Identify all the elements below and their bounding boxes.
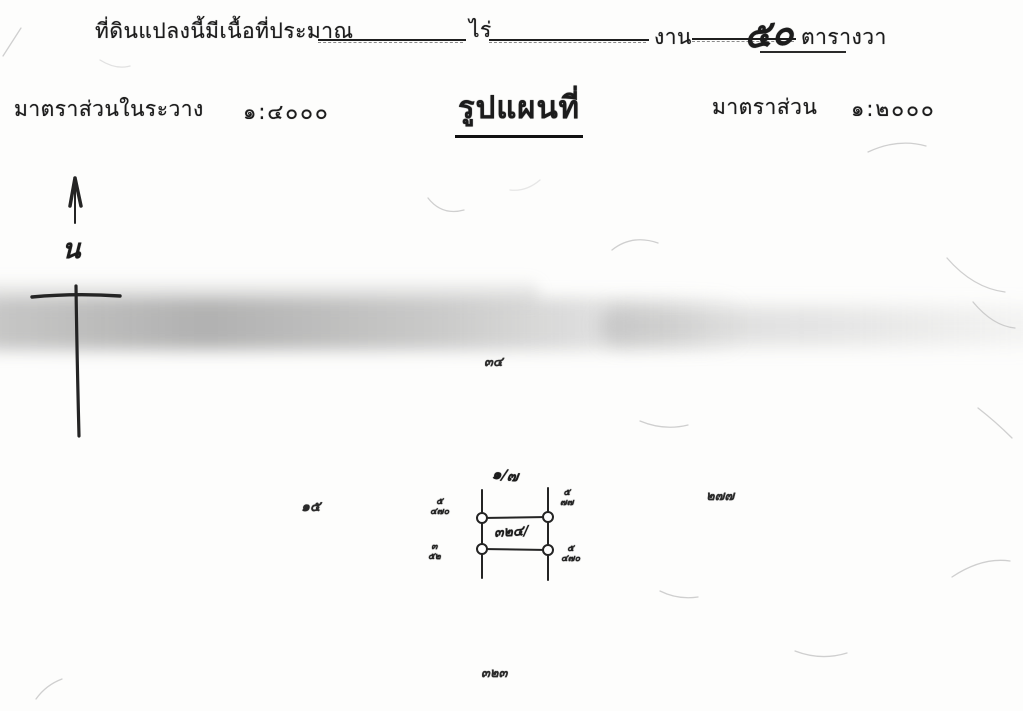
area-prefix-label: ที่ดินแปลงนี้มีเนื้อที่ประมาณ bbox=[95, 15, 354, 48]
annotation-right-mark: ๒๗๗ bbox=[706, 485, 734, 506]
square-wa-underline bbox=[760, 51, 846, 53]
ngan-label: งาน bbox=[654, 21, 692, 54]
boundary-corner-mark-top-left: ๕ ๔๗๐ bbox=[430, 497, 449, 517]
square-wa-handwritten-value: ๕๐ bbox=[742, 3, 796, 64]
ngan-blank-line bbox=[489, 39, 649, 41]
parcel-number: ๓๒๔/ bbox=[493, 520, 529, 544]
map-scale-value: ๑:๒๐๐๐ bbox=[851, 93, 936, 126]
sheet-scale-value: ๑:๔๐๐๐ bbox=[243, 96, 330, 129]
north-label: น bbox=[62, 227, 80, 270]
annotation-sheet-mark: ๓๔ bbox=[484, 351, 503, 372]
annotation-bottom-mark: ๓๒๓ bbox=[481, 662, 507, 683]
rai-blank-line bbox=[318, 39, 466, 41]
parcel-upper-number: ๑/๗ bbox=[491, 461, 520, 488]
square-wa-label: ตารางวา bbox=[801, 21, 887, 54]
north-arrow-icon bbox=[18, 168, 148, 453]
map-scale-label: มาตราส่วน bbox=[712, 91, 817, 124]
scanned-land-document-page: ที่ดินแปลงนี้มีเนื้อที่ประมาณ ไร่ งาน ๕๐… bbox=[0, 0, 1023, 711]
annotation-left-mark: ๑๕ bbox=[301, 496, 320, 518]
sheet-scale-label: มาตราส่วนในระวาง bbox=[14, 93, 204, 126]
boundary-corner-mark-top-right: ๕ ๗๗ bbox=[560, 488, 574, 508]
boundary-corner-mark-bottom-right: ๕ ๔๗๐ bbox=[561, 544, 580, 564]
boundary-corner-mark-bottom-left: ๓ ๕๒ bbox=[428, 542, 441, 562]
page-title: รูปแผนที่ bbox=[455, 82, 583, 138]
